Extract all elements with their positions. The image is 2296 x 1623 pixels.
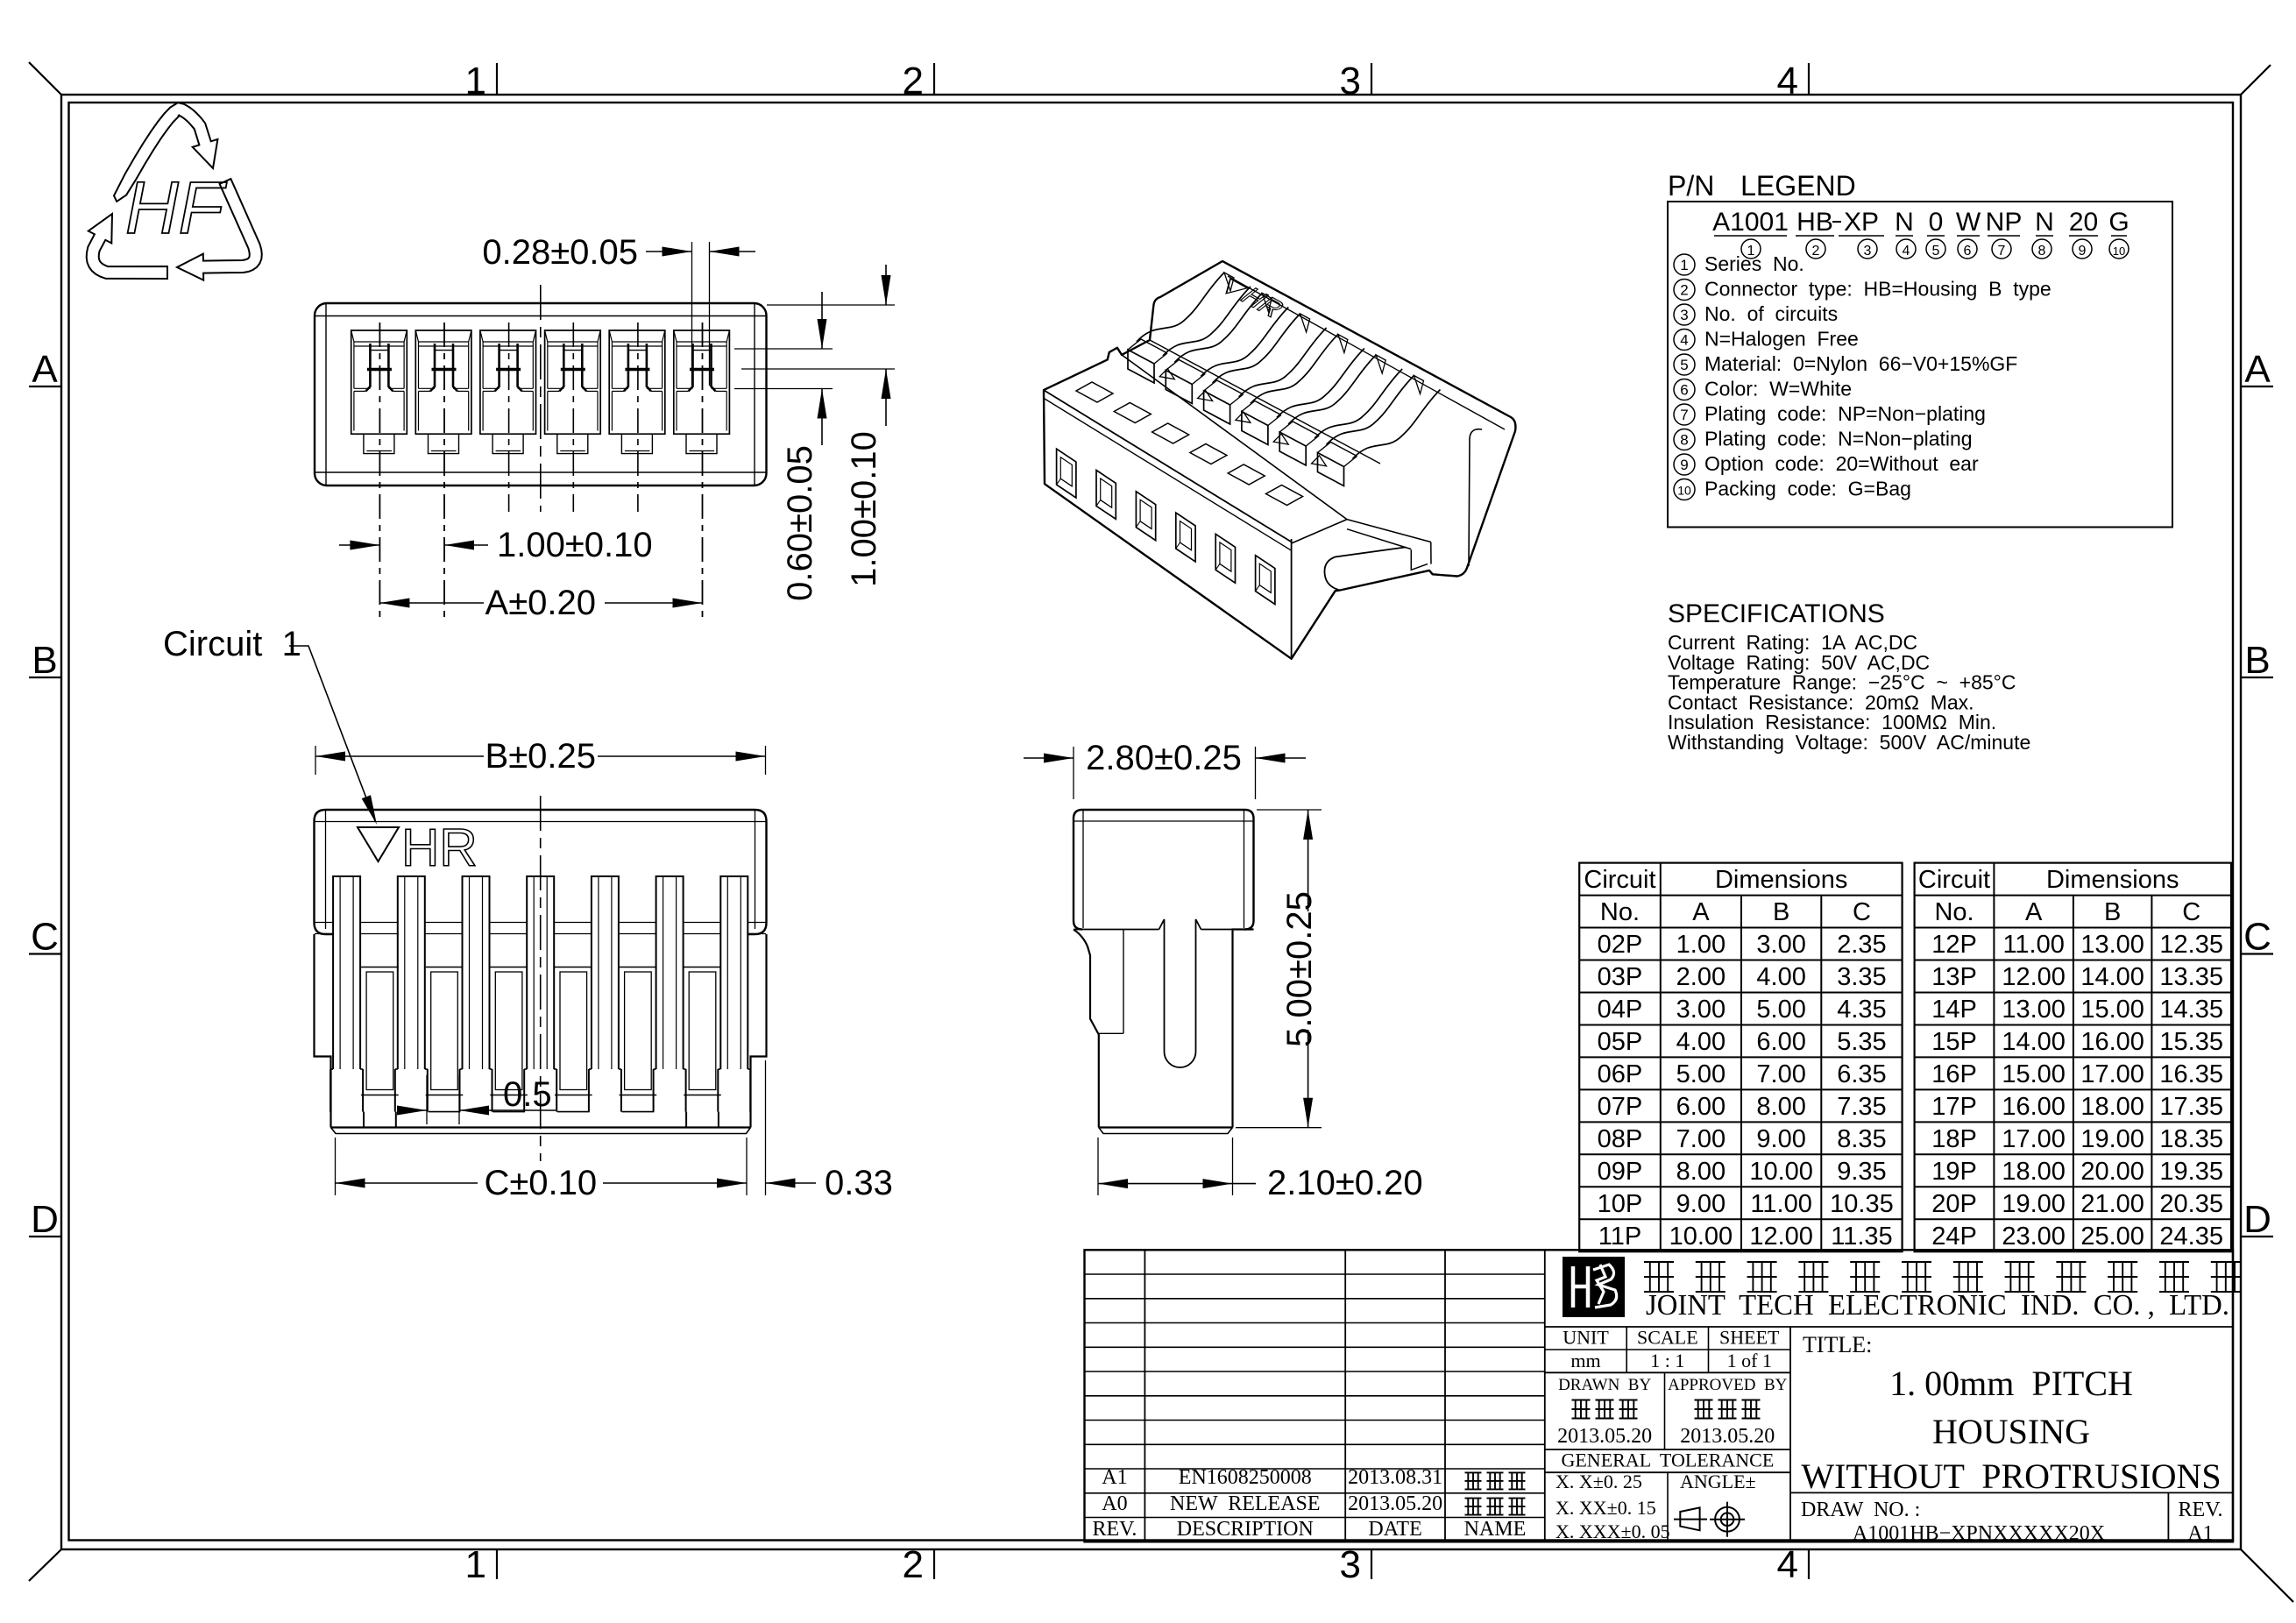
- svg-text:Color: W=White: Color: W=White: [1704, 378, 1852, 400]
- svg-text:SHEET: SHEET: [1719, 1327, 1780, 1349]
- svg-text:23.00: 23.00: [2002, 1223, 2066, 1251]
- svg-text:Dimensions: Dimensions: [1715, 866, 1848, 894]
- svg-text:APPROVED BY: APPROVED BY: [1668, 1376, 1787, 1394]
- svg-text:DATE: DATE: [1368, 1518, 1421, 1541]
- svg-text:3: 3: [1864, 244, 1872, 259]
- svg-text:Plating code: NP=Non−plating: Plating code: NP=Non−plating: [1704, 402, 1986, 425]
- svg-text:6.00: 6.00: [1756, 1028, 1805, 1056]
- svg-text:18.00: 18.00: [2002, 1158, 2066, 1186]
- svg-text:G: G: [2108, 208, 2129, 237]
- svg-text:2.10±0.20: 2.10±0.20: [1267, 1164, 1423, 1202]
- svg-text:B: B: [32, 639, 57, 682]
- svg-text:No.: No.: [1934, 898, 1974, 926]
- svg-text:04P: 04P: [1598, 996, 1643, 1024]
- svg-text:2: 2: [1812, 244, 1820, 259]
- svg-text:SPECIFICATIONS: SPECIFICATIONS: [1668, 599, 1885, 628]
- svg-text:A: A: [2244, 348, 2271, 391]
- svg-text:17.00: 17.00: [2080, 1060, 2144, 1088]
- svg-text:2013.05.20: 2013.05.20: [1680, 1425, 1775, 1448]
- svg-text:5.00: 5.00: [1756, 996, 1805, 1024]
- svg-text:HF: HF: [125, 167, 228, 249]
- svg-text:03P: 03P: [1598, 963, 1643, 991]
- svg-text:No. of circuits: No. of circuits: [1704, 302, 1838, 325]
- svg-text:12.35: 12.35: [2159, 931, 2223, 959]
- svg-text:3.00: 3.00: [1756, 931, 1805, 959]
- svg-text:7.00: 7.00: [1756, 1060, 1805, 1088]
- svg-text:2: 2: [1680, 282, 1688, 299]
- svg-text:ANGLE±: ANGLE±: [1680, 1471, 1756, 1492]
- svg-text:2013.05.20: 2013.05.20: [1348, 1492, 1442, 1515]
- svg-text:11P: 11P: [1598, 1223, 1641, 1251]
- svg-text:A1001: A1001: [1712, 208, 1789, 237]
- svg-text:4.35: 4.35: [1837, 996, 1886, 1024]
- svg-text:1 of 1: 1 of 1: [1727, 1350, 1772, 1371]
- svg-text:19P: 19P: [1931, 1158, 1977, 1186]
- svg-text:8.00: 8.00: [1676, 1158, 1726, 1186]
- svg-text:DRAW NO. :: DRAW NO. :: [1801, 1499, 1920, 1521]
- svg-text:18P: 18P: [1931, 1125, 1977, 1153]
- svg-text:2.80±0.25: 2.80±0.25: [1086, 739, 1242, 777]
- svg-text:0: 0: [1929, 208, 1944, 237]
- svg-text:TITLE:: TITLE:: [1803, 1332, 1872, 1357]
- svg-text:15.00: 15.00: [2002, 1060, 2066, 1088]
- svg-text:HB: HB: [1796, 208, 1833, 237]
- svg-text:B: B: [2104, 898, 2121, 926]
- svg-text:W: W: [1956, 208, 1981, 237]
- svg-text:8.35: 8.35: [1837, 1125, 1886, 1153]
- svg-text:JOINT TECH ELECTRONIC IND.: JOINT TECH ELECTRONIC IND. CO. , LTD.: [1646, 1289, 2229, 1322]
- svg-text:24P: 24P: [1931, 1223, 1977, 1251]
- svg-text:A1: A1: [1102, 1466, 1127, 1489]
- svg-text:17.35: 17.35: [2159, 1093, 2223, 1121]
- svg-text:14.00: 14.00: [2080, 963, 2144, 991]
- svg-text:16.00: 16.00: [2080, 1028, 2144, 1056]
- svg-text:16.00: 16.00: [2002, 1093, 2066, 1121]
- svg-text:07P: 07P: [1598, 1093, 1643, 1121]
- svg-text:3: 3: [1340, 60, 1361, 103]
- svg-text:15.35: 15.35: [2159, 1028, 2223, 1056]
- svg-text:Circuit: Circuit: [1918, 866, 1990, 894]
- svg-text:Dimensions: Dimensions: [2046, 866, 2179, 894]
- svg-text:Series No.: Series No.: [1704, 252, 1804, 275]
- svg-text:6: 6: [1964, 244, 1972, 259]
- svg-text:10.00: 10.00: [1749, 1158, 1813, 1186]
- svg-text:2.00: 2.00: [1676, 963, 1726, 991]
- svg-text:A1: A1: [2187, 1522, 2213, 1545]
- svg-text:NEW RELEASE: NEW RELEASE: [1170, 1492, 1321, 1515]
- svg-text:2013.08.31: 2013.08.31: [1348, 1466, 1442, 1489]
- svg-text:D: D: [2243, 1198, 2271, 1241]
- svg-text:4.00: 4.00: [1756, 963, 1805, 991]
- svg-text:mm: mm: [1570, 1350, 1600, 1371]
- svg-text:2.35: 2.35: [1837, 931, 1886, 959]
- svg-text:14.35: 14.35: [2159, 996, 2223, 1024]
- svg-text:1: 1: [465, 1543, 486, 1586]
- svg-text:D: D: [31, 1198, 59, 1241]
- svg-text:15.00: 15.00: [2080, 996, 2144, 1024]
- svg-text:NAME: NAME: [1464, 1518, 1527, 1541]
- svg-text:11.35: 11.35: [1831, 1223, 1892, 1251]
- svg-text:C±0.10: C±0.10: [484, 1164, 597, 1202]
- svg-text:09P: 09P: [1598, 1158, 1643, 1186]
- svg-text:13.35: 13.35: [2159, 963, 2223, 991]
- svg-text:12.00: 12.00: [1749, 1223, 1813, 1251]
- svg-text:18.35: 18.35: [2159, 1125, 2223, 1153]
- svg-text:02P: 02P: [1598, 931, 1643, 959]
- svg-text:No.: No.: [1600, 898, 1640, 926]
- svg-text:1.00±0.10: 1.00±0.10: [845, 431, 883, 587]
- svg-text:N: N: [1895, 208, 1914, 237]
- svg-text:2: 2: [903, 1543, 924, 1586]
- svg-text:5.00±0.25: 5.00±0.25: [1280, 891, 1319, 1047]
- svg-text:18.00: 18.00: [2080, 1093, 2144, 1121]
- svg-text:6: 6: [1680, 382, 1688, 399]
- svg-text:A0: A0: [1102, 1492, 1127, 1515]
- svg-text:DESCRIPTION: DESCRIPTION: [1177, 1518, 1314, 1541]
- svg-text:Connector type: HB=Housing: Connector type: HB=Housing B type: [1704, 278, 2052, 301]
- svg-text:4: 4: [1680, 332, 1688, 349]
- svg-text:20P: 20P: [1931, 1190, 1977, 1218]
- svg-text:17.00: 17.00: [2002, 1125, 2066, 1153]
- svg-text:8: 8: [2038, 244, 2046, 259]
- svg-text:A: A: [2025, 898, 2043, 926]
- svg-text:7.00: 7.00: [1676, 1125, 1726, 1153]
- svg-text:5.00: 5.00: [1676, 1060, 1726, 1088]
- svg-text:05P: 05P: [1598, 1028, 1643, 1056]
- svg-text:20: 20: [2069, 208, 2098, 237]
- svg-text:REV.: REV.: [1092, 1518, 1137, 1541]
- svg-text:Option code: 20=Without ear: Option code: 20=Without ear: [1704, 452, 1979, 475]
- svg-text:7: 7: [1998, 244, 2006, 259]
- svg-text:19.00: 19.00: [2002, 1190, 2066, 1218]
- svg-text:1.00±0.10: 1.00±0.10: [497, 526, 653, 564]
- svg-text:19.00: 19.00: [2080, 1125, 2144, 1153]
- svg-text:1.00: 1.00: [1676, 931, 1726, 959]
- svg-text:3: 3: [1680, 307, 1688, 323]
- svg-text:XP: XP: [1844, 208, 1879, 237]
- svg-text:C: C: [31, 916, 59, 959]
- svg-text:10: 10: [2113, 245, 2125, 258]
- svg-text:0.28±0.05: 0.28±0.05: [482, 233, 638, 272]
- svg-text:WITHOUT PROTRUSIONS: WITHOUT PROTRUSIONS: [1801, 1456, 2221, 1496]
- svg-text:24.35: 24.35: [2159, 1223, 2223, 1251]
- svg-text:10.35: 10.35: [1830, 1190, 1894, 1218]
- svg-text:4.00: 4.00: [1676, 1028, 1726, 1056]
- svg-text:A: A: [1692, 898, 1710, 926]
- svg-text:Plating code: N=Non−plating: Plating code: N=Non−plating: [1704, 428, 1973, 450]
- svg-text:3.35: 3.35: [1837, 963, 1886, 991]
- svg-text:9.35: 9.35: [1837, 1158, 1886, 1186]
- svg-text:7.35: 7.35: [1837, 1093, 1886, 1121]
- svg-text:C: C: [2243, 916, 2271, 959]
- svg-text:0.5: 0.5: [503, 1075, 552, 1114]
- svg-text:19.35: 19.35: [2159, 1158, 2223, 1186]
- svg-text:08P: 08P: [1598, 1125, 1643, 1153]
- svg-text:14P: 14P: [1931, 996, 1977, 1024]
- svg-text:C: C: [1853, 898, 1871, 926]
- svg-text:06P: 06P: [1598, 1060, 1643, 1088]
- svg-text:9: 9: [2079, 244, 2087, 259]
- svg-text:17P: 17P: [1931, 1093, 1977, 1121]
- svg-text:A1001HB−XPNXXXXX20X: A1001HB−XPNXXXXX20X: [1853, 1522, 2105, 1545]
- svg-text:16P: 16P: [1931, 1060, 1977, 1088]
- svg-text:11.00: 11.00: [1750, 1190, 1811, 1218]
- svg-text:DRAWN BY: DRAWN BY: [1558, 1376, 1651, 1394]
- svg-text:0.33: 0.33: [825, 1164, 893, 1202]
- svg-text:P/N LEGEND: P/N LEGEND: [1668, 170, 1856, 202]
- svg-text:3: 3: [1340, 1543, 1361, 1586]
- svg-text:N=Halogen Free: N=Halogen Free: [1704, 328, 1859, 351]
- svg-text:NP: NP: [1986, 208, 2023, 237]
- svg-text:B: B: [2244, 639, 2270, 682]
- svg-text:N: N: [2035, 208, 2054, 237]
- svg-text:2013.05.20: 2013.05.20: [1557, 1425, 1652, 1448]
- svg-text:A±0.20: A±0.20: [485, 584, 596, 622]
- svg-text:Circuit: Circuit: [1584, 866, 1655, 894]
- svg-text:11.00: 11.00: [2002, 931, 2064, 959]
- svg-text:Material: 0=Nylon 66−V0+15%G: Material: 0=Nylon 66−V0+15%GF: [1704, 352, 2017, 375]
- svg-text:GENERAL TOLERANCE: GENERAL TOLERANCE: [1561, 1449, 1774, 1471]
- svg-text:A: A: [32, 348, 58, 391]
- svg-text:2: 2: [903, 60, 924, 103]
- svg-text:SCALE: SCALE: [1637, 1327, 1698, 1349]
- svg-text:16.35: 16.35: [2159, 1060, 2223, 1088]
- svg-text:21.00: 21.00: [2080, 1190, 2144, 1218]
- svg-text:3.00: 3.00: [1676, 996, 1726, 1024]
- svg-text:13.00: 13.00: [2002, 996, 2066, 1024]
- svg-text:X. XX±0. 15: X. XX±0. 15: [1555, 1497, 1656, 1519]
- svg-text:X. X±0. 25: X. X±0. 25: [1555, 1471, 1642, 1492]
- svg-text:4: 4: [1777, 1543, 1798, 1586]
- svg-text:B±0.25: B±0.25: [485, 737, 596, 776]
- svg-text:10.00: 10.00: [1669, 1223, 1733, 1251]
- svg-text:Circuit 1: Circuit 1: [163, 625, 301, 663]
- svg-text:B: B: [1773, 898, 1789, 926]
- svg-text:1: 1: [1680, 257, 1688, 273]
- svg-text:HOUSING: HOUSING: [1932, 1412, 2090, 1451]
- svg-text:10: 10: [1677, 484, 1691, 498]
- svg-text:13.00: 13.00: [2080, 931, 2144, 959]
- svg-text:6.00: 6.00: [1676, 1093, 1726, 1121]
- svg-text:0.60±0.05: 0.60±0.05: [781, 445, 819, 601]
- svg-text:12.00: 12.00: [2002, 963, 2066, 991]
- svg-text:EN1608250008: EN1608250008: [1179, 1466, 1312, 1489]
- svg-text:13P: 13P: [1931, 963, 1977, 991]
- svg-text:20.00: 20.00: [2080, 1158, 2144, 1186]
- svg-text:1. 00mm PITCH: 1. 00mm PITCH: [1889, 1364, 2133, 1403]
- svg-text:10P: 10P: [1598, 1190, 1643, 1218]
- svg-text:20.35: 20.35: [2159, 1190, 2223, 1218]
- svg-text:4: 4: [1777, 60, 1798, 103]
- svg-text:C: C: [2182, 898, 2200, 926]
- svg-text:1: 1: [465, 60, 486, 103]
- svg-text:Packing code: G=Bag: Packing code: G=Bag: [1704, 478, 1911, 500]
- svg-text:8: 8: [1680, 432, 1688, 449]
- svg-text:REV.: REV.: [2179, 1499, 2223, 1521]
- svg-text:12P: 12P: [1931, 931, 1977, 959]
- svg-text:25.00: 25.00: [2080, 1223, 2144, 1251]
- svg-text:9.00: 9.00: [1676, 1190, 1726, 1218]
- svg-text:9.00: 9.00: [1756, 1125, 1805, 1153]
- svg-text:9: 9: [1680, 457, 1688, 473]
- svg-text:1 : 1: 1 : 1: [1650, 1350, 1684, 1371]
- svg-text:5: 5: [1932, 244, 1940, 259]
- svg-text:5.35: 5.35: [1837, 1028, 1886, 1056]
- svg-text:14.00: 14.00: [2002, 1028, 2066, 1056]
- svg-text:6.35: 6.35: [1837, 1060, 1886, 1088]
- svg-text:8.00: 8.00: [1756, 1093, 1805, 1121]
- svg-text:UNIT: UNIT: [1563, 1327, 1609, 1349]
- svg-text:7: 7: [1680, 407, 1688, 423]
- svg-text:HR: HR: [401, 819, 478, 877]
- svg-text:15P: 15P: [1931, 1028, 1977, 1056]
- svg-text:5: 5: [1680, 357, 1688, 373]
- svg-text:4: 4: [1903, 244, 1910, 259]
- svg-text:X. XXX±0. 05: X. XXX±0. 05: [1555, 1520, 1670, 1542]
- svg-text:Withstanding Voltage: 500V: Withstanding Voltage: 500V AC/minute: [1668, 731, 2030, 754]
